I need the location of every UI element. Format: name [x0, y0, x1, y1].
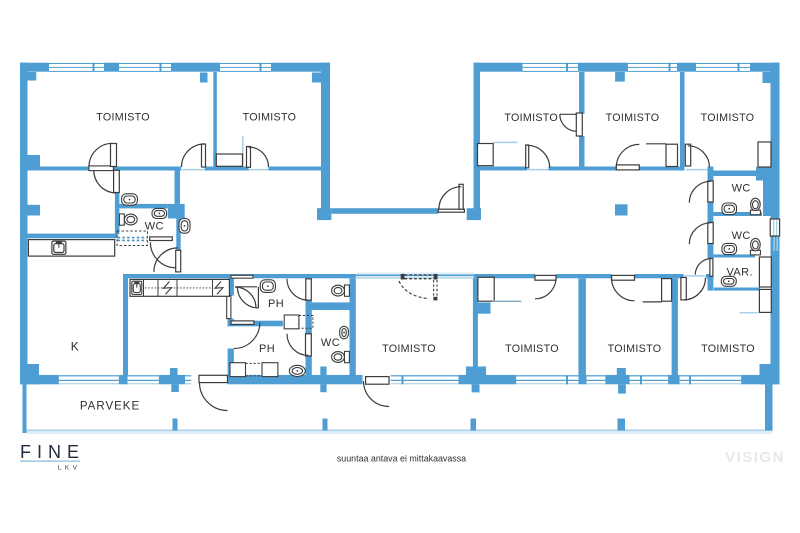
svg-text:TOIMISTO: TOIMISTO — [701, 343, 755, 355]
svg-text:TOIMISTO: TOIMISTO — [701, 112, 755, 124]
svg-text:K: K — [71, 340, 79, 354]
svg-text:FINE: FINE — [20, 442, 85, 462]
svg-text:WC: WC — [732, 230, 751, 242]
svg-text:TOIMISTO: TOIMISTO — [96, 111, 150, 123]
svg-text:TOIMISTO: TOIMISTO — [504, 112, 558, 124]
svg-text:TOIMISTO: TOIMISTO — [505, 343, 559, 355]
svg-text:TOIMISTO: TOIMISTO — [382, 343, 436, 355]
svg-text:TOIMISTO: TOIMISTO — [243, 111, 297, 123]
svg-text:PARVEKE: PARVEKE — [80, 401, 140, 413]
svg-text:LKV: LKV — [58, 465, 81, 472]
svg-text:VAR.: VAR. — [726, 267, 752, 279]
svg-text:VISIGN: VISIGN — [725, 449, 785, 466]
svg-text:suuntaa antava ei mittakaavass: suuntaa antava ei mittakaavassa — [337, 454, 466, 464]
svg-text:PH: PH — [259, 343, 275, 355]
svg-text:TOIMISTO: TOIMISTO — [606, 112, 660, 124]
svg-text:WC: WC — [732, 182, 751, 194]
svg-text:WC: WC — [321, 337, 340, 349]
svg-text:TOIMISTO: TOIMISTO — [608, 343, 662, 355]
svg-text:WC: WC — [145, 221, 164, 233]
svg-text:PH: PH — [268, 298, 284, 310]
